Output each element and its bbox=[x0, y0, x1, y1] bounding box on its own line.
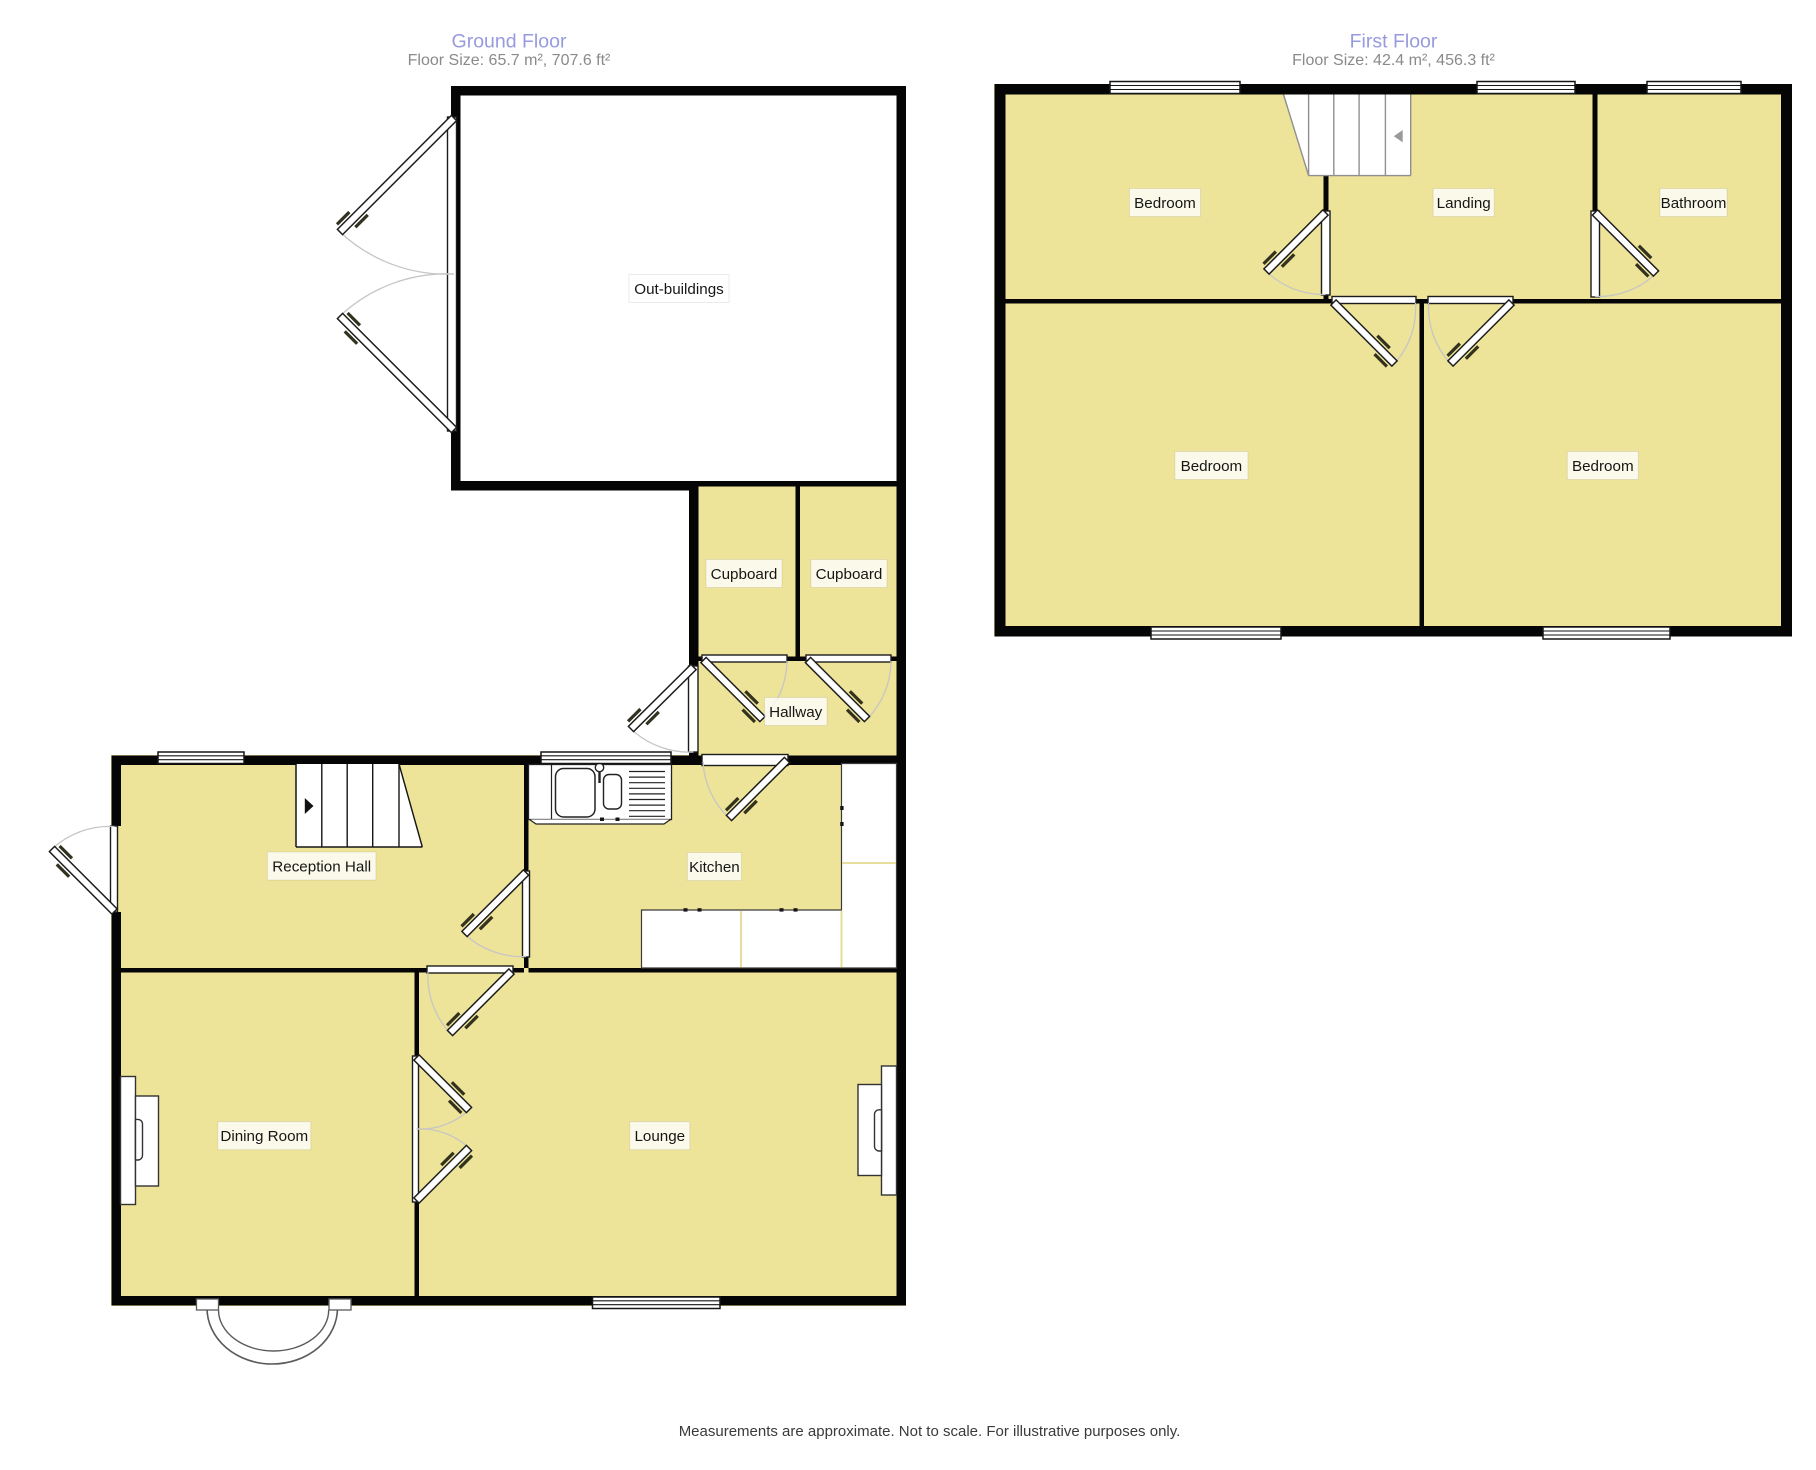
svg-text:Cupboard: Cupboard bbox=[711, 566, 778, 583]
svg-text:Bedroom: Bedroom bbox=[1134, 195, 1196, 212]
svg-text:Out-buildings: Out-buildings bbox=[634, 281, 724, 298]
svg-text:Lounge: Lounge bbox=[634, 1128, 685, 1145]
svg-text:Floor Size: 42.4 m², 456.3 ft²: Floor Size: 42.4 m², 456.3 ft² bbox=[1292, 52, 1495, 69]
svg-text:Landing: Landing bbox=[1437, 195, 1491, 212]
svg-text:First Floor: First Floor bbox=[1350, 31, 1438, 53]
svg-text:Bedroom: Bedroom bbox=[1181, 458, 1243, 475]
svg-text:Ground Floor: Ground Floor bbox=[452, 31, 567, 53]
svg-text:Kitchen: Kitchen bbox=[689, 859, 740, 876]
svg-text:Bedroom: Bedroom bbox=[1572, 458, 1634, 475]
svg-text:Floor Size: 65.7 m², 707.6 ft²: Floor Size: 65.7 m², 707.6 ft² bbox=[408, 52, 611, 69]
svg-text:Bathroom: Bathroom bbox=[1661, 195, 1727, 212]
svg-text:Measurements are approximate.: Measurements are approximate. Not to sca… bbox=[679, 1423, 1181, 1440]
svg-text:Cupboard: Cupboard bbox=[816, 566, 883, 583]
svg-text:Hallway: Hallway bbox=[769, 704, 823, 721]
svg-text:Dining Room: Dining Room bbox=[220, 1128, 308, 1145]
svg-text:Reception Hall: Reception Hall bbox=[272, 858, 371, 875]
